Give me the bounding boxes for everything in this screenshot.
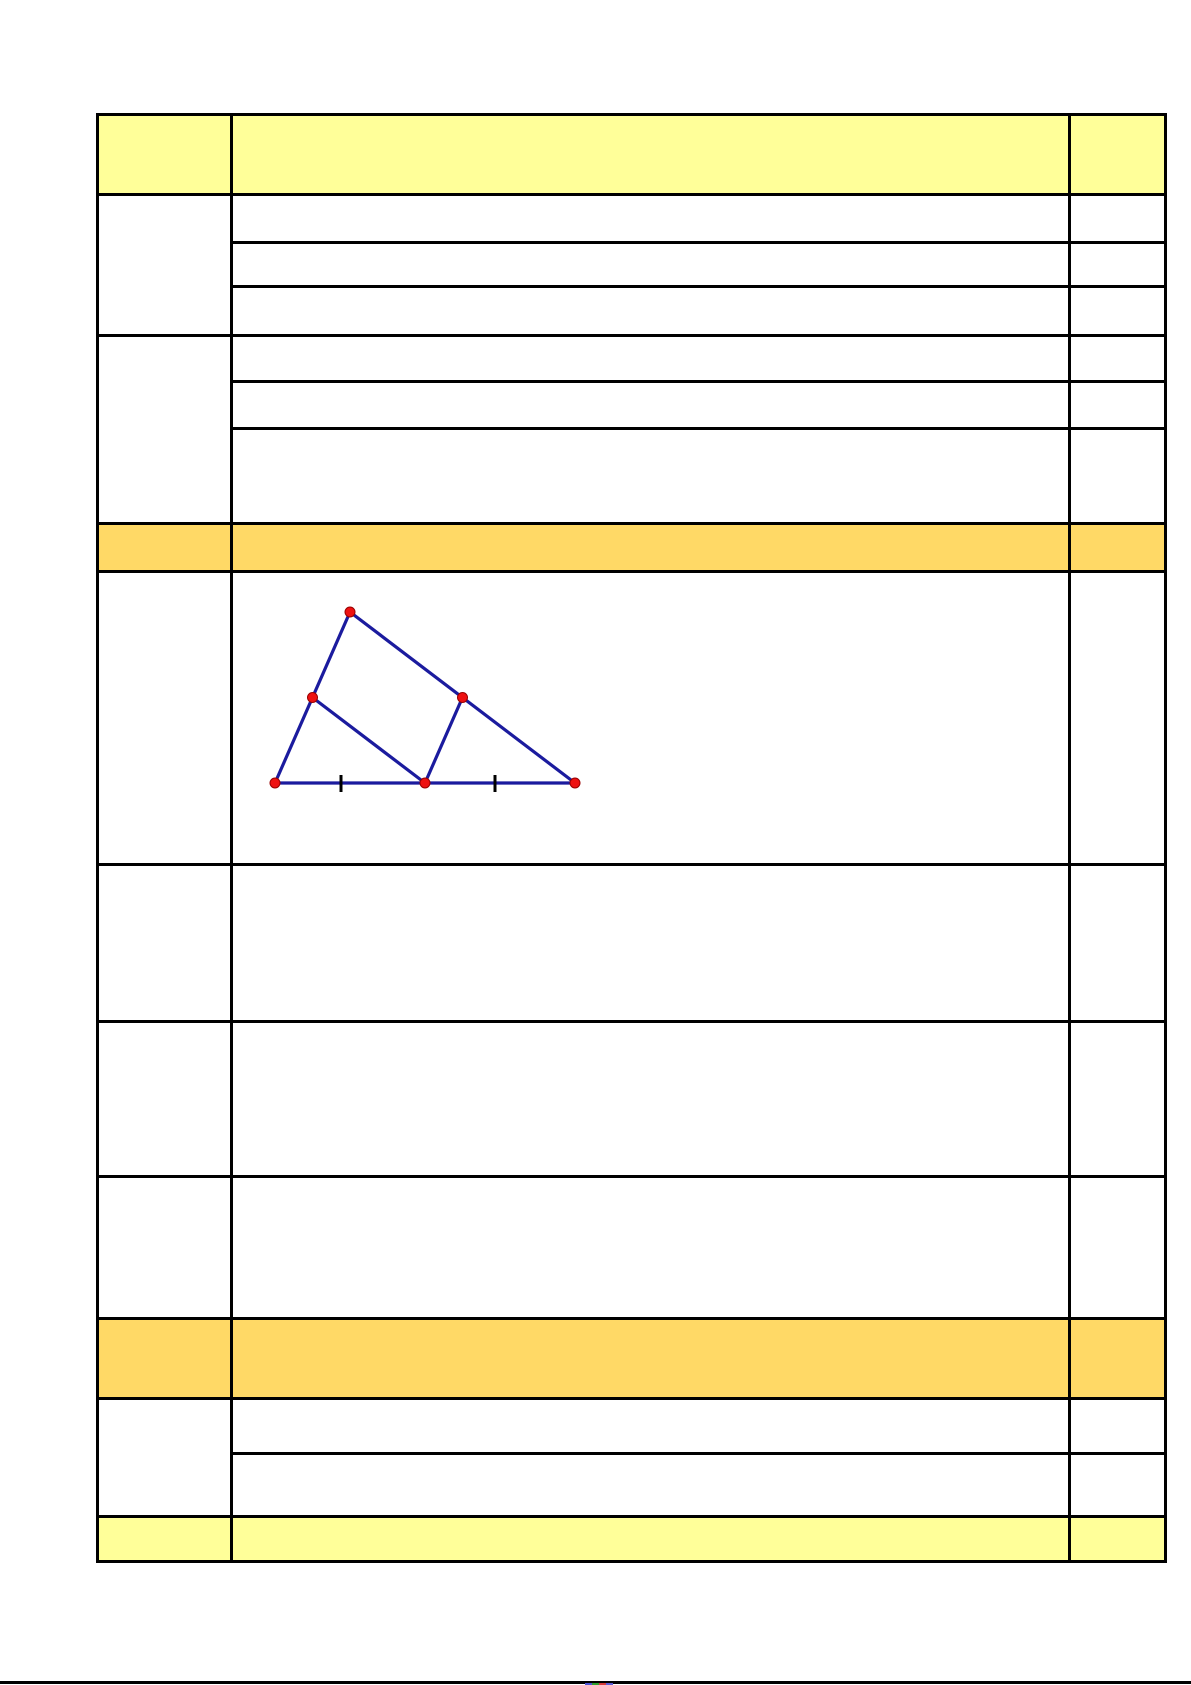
cell-r12-content bbox=[232, 1177, 1070, 1319]
cell-r15-content bbox=[232, 1454, 1070, 1517]
cell-section2-label bbox=[98, 1319, 232, 1399]
bottom-left-vertex-point bbox=[270, 778, 280, 788]
segment-right-midpoint-to-base-midpoint bbox=[425, 698, 463, 784]
table-row bbox=[98, 195, 1166, 243]
cell-r3-content bbox=[232, 243, 1070, 287]
cell-r11-points bbox=[1070, 1022, 1166, 1177]
page bbox=[0, 0, 1191, 1685]
cell-r7-content bbox=[232, 429, 1070, 524]
cell-r6-content bbox=[232, 382, 1070, 429]
cell-diagram-label bbox=[98, 572, 232, 865]
cell-header-points bbox=[1070, 115, 1166, 195]
table-row bbox=[98, 243, 1166, 287]
segment-left-midpoint-to-base-midpoint bbox=[313, 698, 426, 784]
cell-r2-content bbox=[232, 195, 1070, 243]
table-row bbox=[98, 1177, 1166, 1319]
cell-r7-points bbox=[1070, 429, 1166, 524]
cell-r11-label bbox=[98, 1022, 232, 1177]
section-band-row bbox=[98, 1319, 1166, 1399]
table-row bbox=[98, 382, 1166, 429]
cell-r2-points bbox=[1070, 195, 1166, 243]
cell-r3-points bbox=[1070, 243, 1166, 287]
cell-header-label bbox=[98, 115, 232, 195]
cell-group1-label bbox=[98, 195, 232, 336]
cell-section1-content bbox=[232, 524, 1070, 572]
cell-section2-content bbox=[232, 1319, 1070, 1399]
section-band-row bbox=[98, 524, 1166, 572]
cell-r11-content bbox=[232, 1022, 1070, 1177]
table-row bbox=[98, 429, 1166, 524]
cell-section1-points bbox=[1070, 524, 1166, 572]
worksheet-table bbox=[96, 113, 1167, 1563]
cell-r14-points bbox=[1070, 1399, 1166, 1454]
cell-r12-points bbox=[1070, 1177, 1166, 1319]
cell-r4-points bbox=[1070, 287, 1166, 336]
table-row bbox=[98, 287, 1166, 336]
cell-r6-points bbox=[1070, 382, 1166, 429]
right-midpoint-point bbox=[458, 693, 468, 703]
cell-r10-label bbox=[98, 865, 232, 1022]
cell-r4-content bbox=[232, 287, 1070, 336]
table-row bbox=[98, 1399, 1166, 1454]
cell-group3-label bbox=[98, 1399, 232, 1517]
cell-diagram-points bbox=[1070, 572, 1166, 865]
cell-r5-content bbox=[232, 336, 1070, 382]
cell-r5-points bbox=[1070, 336, 1166, 382]
cell-r10-points bbox=[1070, 865, 1166, 1022]
cell-r14-content bbox=[232, 1399, 1070, 1454]
cell-diagram-content bbox=[232, 572, 1070, 865]
cell-footer-label bbox=[98, 1517, 232, 1562]
apex-vertex-point bbox=[345, 607, 355, 617]
bottom-right-vertex-point bbox=[570, 778, 580, 788]
cell-r12-label bbox=[98, 1177, 232, 1319]
cell-section1-label bbox=[98, 524, 232, 572]
cell-section2-points bbox=[1070, 1319, 1166, 1399]
cell-group2-label bbox=[98, 336, 232, 524]
cell-r15-points bbox=[1070, 1454, 1166, 1517]
base-midpoint-point bbox=[420, 778, 430, 788]
table-row bbox=[98, 865, 1166, 1022]
cell-header-content bbox=[232, 115, 1070, 195]
cell-footer-points bbox=[1070, 1517, 1166, 1562]
footer-row bbox=[98, 1517, 1166, 1562]
table-row bbox=[98, 115, 1166, 195]
table-row bbox=[98, 336, 1166, 382]
geometry-diagram bbox=[233, 573, 1068, 858]
cell-r10-content bbox=[232, 865, 1070, 1022]
table-row bbox=[98, 1022, 1166, 1177]
table-row bbox=[98, 1454, 1166, 1517]
diagram-row bbox=[98, 572, 1166, 865]
left-midpoint-point bbox=[308, 693, 318, 703]
cell-footer-content bbox=[232, 1517, 1070, 1562]
